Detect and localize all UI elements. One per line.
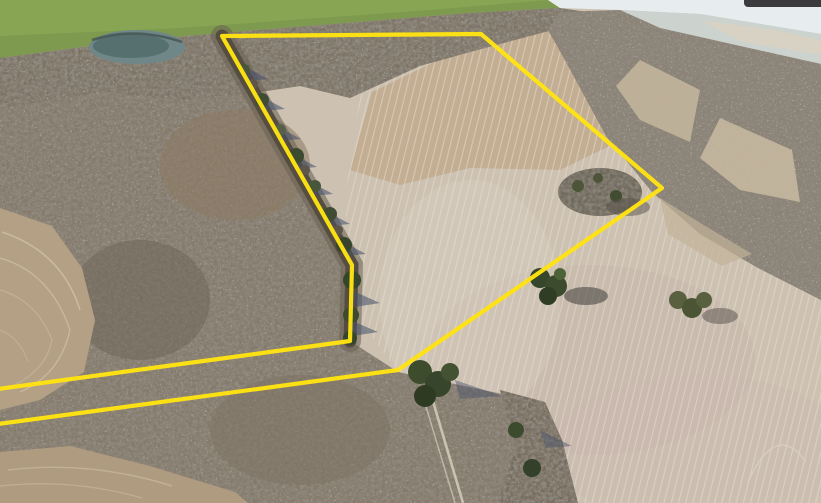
tree-shadow	[564, 287, 608, 305]
ui-bar-fragment	[744, 0, 821, 7]
aerial-photo	[0, 0, 821, 503]
pond	[89, 30, 185, 64]
tree-shadow	[702, 308, 738, 324]
aerial-photo-viewport	[0, 0, 821, 503]
